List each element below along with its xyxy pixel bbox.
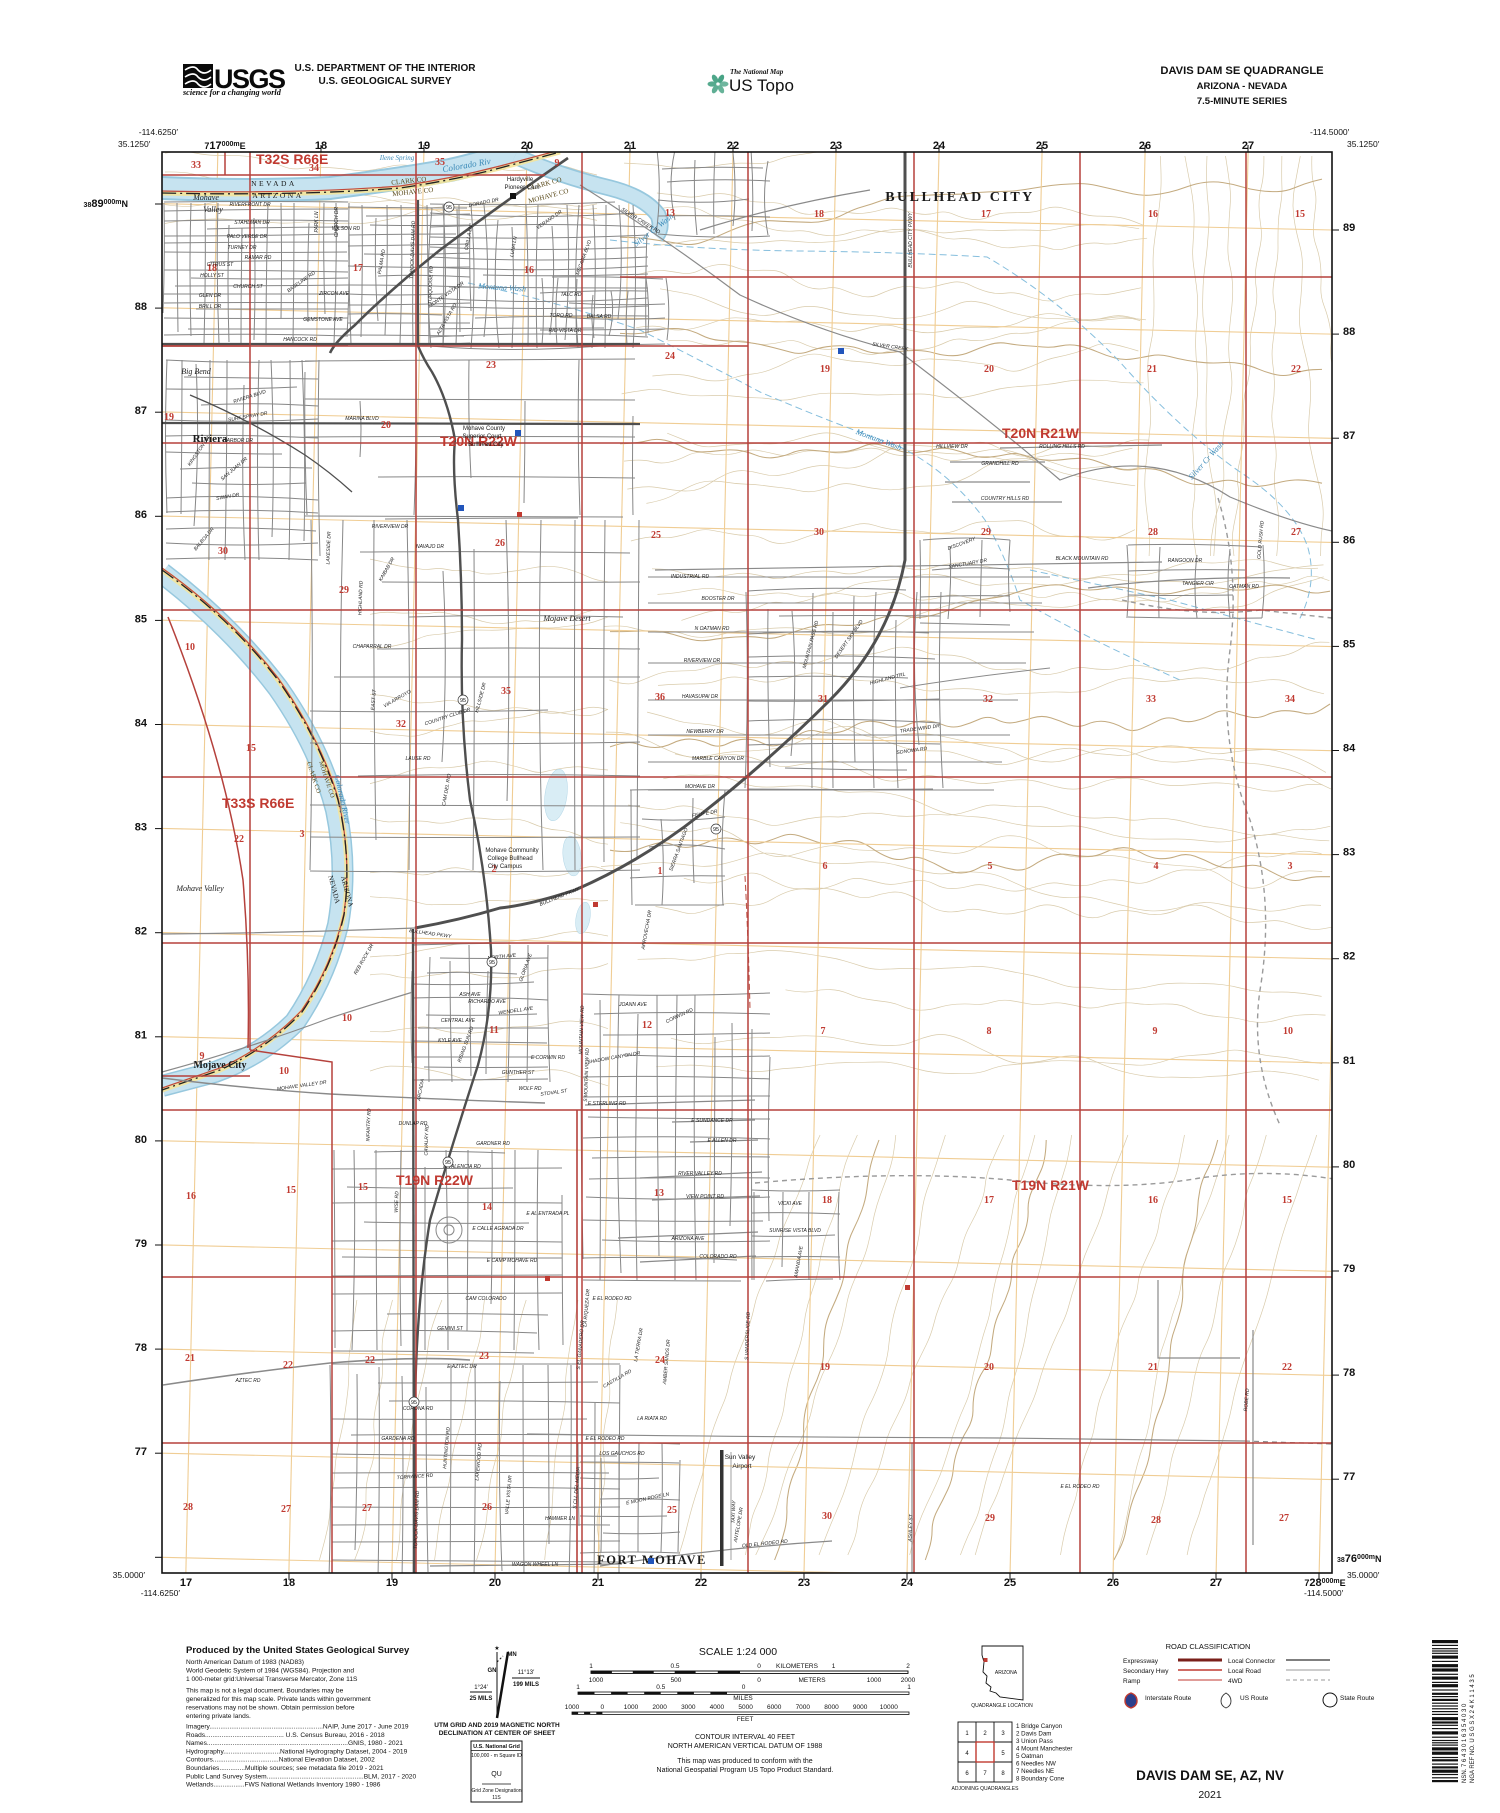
- svg-text:26: 26: [1139, 140, 1151, 152]
- svg-text:81: 81: [1343, 1055, 1355, 1067]
- svg-text:1 Bridge Canyon: 1 Bridge Canyon: [1016, 1723, 1063, 1730]
- svg-text:21: 21: [1147, 364, 1157, 375]
- svg-text:3 Union Pass: 3 Union Pass: [1016, 1738, 1053, 1745]
- svg-text:36: 36: [655, 692, 665, 703]
- svg-text:T19N R21W: T19N R21W: [1012, 1177, 1090, 1193]
- svg-text:GUNTHER ST: GUNTHER ST: [502, 1070, 535, 1076]
- svg-text:11: 11: [489, 1025, 498, 1036]
- svg-text:27: 27: [1291, 527, 1301, 538]
- svg-text:MARBLE CANYON DR: MARBLE CANYON DR: [692, 756, 744, 762]
- svg-text:RIVERVIEW DR: RIVERVIEW DR: [684, 658, 721, 664]
- svg-text:TURNEY DR: TURNEY DR: [227, 245, 256, 251]
- svg-text:QUADRANGLE LOCATION: QUADRANGLE LOCATION: [971, 1703, 1033, 1709]
- svg-text:27: 27: [281, 1504, 291, 1515]
- svg-text:JOANN AVE: JOANN AVE: [618, 1002, 648, 1008]
- svg-text:generalized for this map scale: generalized for this map scale. Private …: [186, 1696, 371, 1703]
- svg-text:RAMAR RD: RAMAR RD: [245, 255, 272, 261]
- svg-text:1°24′: 1°24′: [474, 1685, 488, 1691]
- svg-text:19: 19: [418, 140, 430, 152]
- svg-text:4: 4: [1154, 861, 1159, 872]
- svg-text:Mohave Valley: Mohave Valley: [175, 884, 224, 893]
- svg-text:ASHLEY ST: ASHLEY ST: [907, 1513, 914, 1543]
- svg-text:GLEN DR: GLEN DR: [199, 293, 222, 299]
- svg-text:15: 15: [1282, 1195, 1292, 1206]
- svg-text:Imagery.......................: Imagery.................................…: [186, 1724, 409, 1731]
- svg-text:GARDENA RD: GARDENA RD: [381, 1436, 415, 1442]
- svg-text:State Route: State Route: [1340, 1695, 1375, 1702]
- svg-text:E ALLEN DR: E ALLEN DR: [708, 1138, 737, 1144]
- svg-text:Expressway: Expressway: [1123, 1658, 1159, 1665]
- svg-text:79: 79: [135, 1238, 147, 1250]
- svg-text:Mohave: Mohave: [192, 193, 219, 202]
- svg-text:95: 95: [489, 960, 495, 966]
- svg-text:16: 16: [186, 1191, 196, 1202]
- svg-text:CHAPARRAL DR: CHAPARRAL DR: [353, 644, 392, 650]
- svg-text:23: 23: [486, 360, 496, 371]
- svg-text:84: 84: [1343, 743, 1356, 755]
- svg-text:World Geodetic System of 1984: World Geodetic System of 1984 (WGS84). P…: [186, 1668, 354, 1675]
- svg-text:7: 7: [821, 1026, 826, 1037]
- svg-text:LAKESIDE DR: LAKESIDE DR: [325, 531, 332, 565]
- svg-text:7 Needles NE: 7 Needles NE: [1016, 1768, 1054, 1775]
- svg-text:INFANTRY RD: INFANTRY RD: [365, 1108, 372, 1142]
- svg-text:14: 14: [482, 1202, 492, 1213]
- svg-text:95: 95: [411, 1400, 417, 1406]
- svg-text:28: 28: [183, 1502, 193, 1513]
- svg-text:80: 80: [135, 1134, 147, 1146]
- svg-text:T19N R22W: T19N R22W: [396, 1172, 474, 1188]
- svg-text:DAVIS DAM SE, AZ, NV: DAVIS DAM SE, AZ, NV: [1136, 1768, 1284, 1783]
- svg-text:This map was produced to confo: This map was produced to conform with th…: [677, 1758, 813, 1765]
- svg-text:10: 10: [342, 1013, 352, 1024]
- svg-text:22: 22: [695, 1577, 707, 1589]
- svg-text:Mohave County: Mohave County: [463, 426, 505, 432]
- svg-text:4000: 4000: [710, 1704, 725, 1711]
- svg-text:88: 88: [135, 301, 147, 313]
- svg-text:MN: MN: [507, 1652, 516, 1658]
- svg-text:SCALE 1:24 000: SCALE 1:24 000: [699, 1646, 777, 1658]
- svg-text:11°13′: 11°13′: [518, 1670, 535, 1676]
- svg-text:6000: 6000: [767, 1704, 782, 1711]
- svg-text:24: 24: [901, 1577, 914, 1589]
- svg-text:30: 30: [822, 1511, 832, 1522]
- svg-text:RIO VISTA DR: RIO VISTA DR: [549, 328, 582, 334]
- svg-text:0.5: 0.5: [670, 1663, 679, 1670]
- svg-text:26: 26: [482, 1502, 492, 1513]
- svg-text:17: 17: [984, 1195, 994, 1206]
- svg-text:95: 95: [713, 827, 719, 833]
- svg-text:20: 20: [521, 140, 533, 152]
- svg-text:GARDNER RD: GARDNER RD: [476, 1141, 510, 1147]
- svg-text:Public Land Survey System...: Public Land Survey System...............…: [186, 1773, 416, 1780]
- svg-text:34: 34: [1285, 694, 1295, 705]
- svg-text:Mojave City: Mojave City: [193, 1060, 246, 1071]
- svg-text:Valley: Valley: [203, 205, 223, 214]
- svg-text:E SUNDANCE DR: E SUNDANCE DR: [691, 1118, 733, 1124]
- svg-text:Interstate Route: Interstate Route: [1145, 1695, 1192, 1702]
- svg-text:2000: 2000: [652, 1704, 667, 1711]
- svg-text:NAVAJO DR: NAVAJO DR: [416, 544, 444, 550]
- svg-text:WISE RD: WISE RD: [394, 1191, 401, 1213]
- svg-text:5: 5: [988, 861, 993, 872]
- svg-text:E CAMP MOHAVE RD: E CAMP MOHAVE RD: [487, 1258, 538, 1264]
- svg-text:SUNRISE VISTA BLVD: SUNRISE VISTA BLVD: [769, 1228, 821, 1234]
- svg-text:Hydrography...................: Hydrography.............................…: [186, 1748, 408, 1755]
- svg-text:16: 16: [524, 265, 534, 276]
- svg-text:3: 3: [1288, 861, 1293, 872]
- svg-text:3: 3: [300, 829, 305, 840]
- svg-text:19: 19: [820, 364, 830, 375]
- svg-text:25 MILS: 25 MILS: [470, 1696, 493, 1702]
- svg-text:1000: 1000: [624, 1704, 639, 1711]
- svg-text:NGA REF NO. U S G S X 2 4 K 1: NGA REF NO. U S G S X 2 4 K 1 1 4 3 5: [1470, 1674, 1476, 1783]
- svg-text:18: 18: [283, 1577, 295, 1589]
- svg-text:NEVADA: NEVADA: [251, 179, 297, 188]
- svg-text:CAM COLORADO: CAM COLORADO: [465, 1296, 506, 1302]
- svg-text:ZIRCON AVE: ZIRCON AVE: [318, 291, 350, 297]
- svg-text:ROAD CLASSIFICATION: ROAD CLASSIFICATION: [1166, 1642, 1251, 1651]
- svg-text:86: 86: [135, 509, 147, 521]
- svg-text:ARIZONA: ARIZONA: [995, 1670, 1018, 1676]
- svg-text:95: 95: [445, 1160, 451, 1166]
- svg-text:Contours......................: Contours................................…: [186, 1757, 375, 1764]
- svg-text:7.5-MINUTE SERIES: 7.5-MINUTE SERIES: [1197, 96, 1287, 107]
- svg-text:77: 77: [1343, 1471, 1355, 1483]
- svg-text:TALC RD: TALC RD: [560, 292, 581, 298]
- svg-text:GEMSTONE AVE: GEMSTONE AVE: [303, 317, 343, 323]
- svg-text:TANGIER CIR: TANGIER CIR: [1182, 581, 1214, 587]
- svg-text:This map is not a legal docume: This map is not a legal document. Bounda…: [186, 1688, 344, 1695]
- svg-text:FEET: FEET: [737, 1716, 754, 1723]
- svg-text:GN: GN: [488, 1668, 497, 1674]
- svg-text:81: 81: [135, 1030, 147, 1042]
- svg-text:32: 32: [396, 719, 406, 730]
- svg-text:19: 19: [164, 412, 174, 423]
- svg-text:20: 20: [489, 1577, 501, 1589]
- svg-text:25: 25: [1036, 140, 1048, 152]
- svg-text:2000: 2000: [901, 1677, 916, 1684]
- svg-text:1000: 1000: [565, 1704, 580, 1711]
- svg-text:3000: 3000: [681, 1704, 696, 1711]
- svg-text:24: 24: [933, 140, 946, 152]
- svg-text:The National Map: The National Map: [730, 68, 784, 76]
- svg-text:77: 77: [135, 1446, 147, 1458]
- svg-text:89: 89: [1343, 222, 1355, 234]
- svg-text:GRANDHILL RD: GRANDHILL RD: [981, 461, 1019, 467]
- svg-text:21: 21: [624, 140, 636, 152]
- svg-text:35: 35: [501, 686, 511, 697]
- svg-text:OATMAN RD: OATMAN RD: [1229, 584, 1259, 590]
- svg-text:UTM GRID AND 2019 MAGNETIC NOR: UTM GRID AND 2019 MAGNETIC NORTH: [434, 1722, 560, 1729]
- svg-text:Airport: Airport: [732, 1463, 751, 1470]
- svg-text:5 Oatman: 5 Oatman: [1016, 1753, 1044, 1760]
- svg-text:★: ★: [494, 1645, 499, 1652]
- svg-text:35.1250′: 35.1250′: [118, 139, 151, 149]
- svg-text:22: 22: [1282, 1362, 1292, 1373]
- svg-text:15: 15: [246, 743, 256, 754]
- svg-text:10: 10: [1283, 1026, 1293, 1037]
- svg-text:21: 21: [1148, 1362, 1158, 1373]
- svg-text:23: 23: [830, 140, 842, 152]
- svg-text:10: 10: [185, 642, 195, 653]
- svg-text:E CALLE AGRADA DR: E CALLE AGRADA DR: [472, 1226, 524, 1232]
- svg-text:1: 1: [589, 1663, 593, 1670]
- svg-text:CHURCH ST: CHURCH ST: [233, 284, 263, 290]
- svg-text:RICHARDO AVE: RICHARDO AVE: [468, 999, 506, 1005]
- svg-text:25: 25: [667, 1505, 677, 1516]
- svg-text:18: 18: [822, 1195, 832, 1206]
- svg-text:QU: QU: [491, 1771, 502, 1778]
- svg-text:15: 15: [1295, 209, 1305, 220]
- svg-text:0: 0: [757, 1677, 761, 1684]
- svg-text:17: 17: [353, 263, 363, 274]
- svg-text:Superior Court: Superior Court: [462, 434, 501, 440]
- svg-text:ARIZONA: ARIZONA: [252, 191, 303, 200]
- svg-text:DAVIS DAM SE QUADRANGLE: DAVIS DAM SE QUADRANGLE: [1160, 65, 1324, 77]
- svg-text:29: 29: [339, 585, 349, 596]
- svg-text:22: 22: [727, 140, 739, 152]
- svg-text:2021: 2021: [1198, 1789, 1222, 1801]
- svg-text:20: 20: [984, 1362, 994, 1373]
- svg-text:-114.6250′: -114.6250′: [139, 127, 179, 137]
- svg-text:86: 86: [1343, 534, 1355, 546]
- svg-text:13: 13: [654, 1188, 664, 1199]
- svg-text:8000: 8000: [824, 1704, 839, 1711]
- svg-text:500: 500: [671, 1677, 682, 1684]
- svg-text:23: 23: [479, 1351, 489, 1362]
- svg-text:COLORADO RD: COLORADO RD: [699, 1254, 737, 1260]
- svg-text:GEMINI ST: GEMINI ST: [437, 1326, 464, 1332]
- svg-text:82: 82: [135, 926, 147, 938]
- svg-text:RIVERVIEW DR: RIVERVIEW DR: [372, 524, 409, 530]
- svg-text:1: 1: [907, 1684, 911, 1691]
- svg-text:science for a changing world: science for a changing world: [182, 88, 282, 97]
- svg-text:30: 30: [814, 527, 824, 538]
- svg-text:Pioneer Cem: Pioneer Cem: [504, 185, 539, 191]
- svg-text:23: 23: [798, 1577, 810, 1589]
- svg-text:27: 27: [1210, 1577, 1222, 1589]
- svg-text:27: 27: [362, 1503, 372, 1514]
- svg-text:26: 26: [1107, 1577, 1119, 1589]
- svg-text:16: 16: [1148, 209, 1158, 220]
- svg-text:78: 78: [1343, 1367, 1355, 1379]
- svg-text:19: 19: [386, 1577, 398, 1589]
- svg-text:-114.5000′: -114.5000′: [1304, 1588, 1344, 1598]
- svg-text:HILLVIEW DR: HILLVIEW DR: [936, 444, 968, 450]
- svg-text:NEWBERRY DR: NEWBERRY DR: [686, 729, 724, 735]
- svg-text:22: 22: [234, 834, 244, 845]
- svg-text:BRILL DR: BRILL DR: [199, 304, 222, 310]
- svg-text:20: 20: [984, 364, 994, 375]
- svg-text:21: 21: [592, 1577, 604, 1589]
- svg-text:87: 87: [135, 405, 147, 417]
- svg-text:NSN. 7 6 4 3 0 1 6 3 5 4 0 3: NSN. 7 6 4 3 0 1 6 3 5 4 0 3 0: [1462, 1703, 1468, 1783]
- svg-text:E CORWIN RD: E CORWIN RD: [531, 1055, 565, 1061]
- svg-text:T32S R66E: T32S R66E: [256, 151, 328, 167]
- svg-text:11S: 11S: [492, 1795, 501, 1801]
- svg-text:31: 31: [818, 694, 828, 705]
- svg-text:ASH AVE: ASH AVE: [458, 992, 481, 998]
- svg-text:10: 10: [279, 1066, 289, 1077]
- svg-text:12: 12: [642, 1020, 652, 1031]
- svg-text:HAVASUPAI DR: HAVASUPAI DR: [682, 694, 719, 700]
- svg-text:Grid Zone Designation: Grid Zone Designation: [471, 1788, 521, 1794]
- svg-text:KYLE AVE: KYLE AVE: [438, 1038, 462, 1044]
- svg-text:82: 82: [1343, 951, 1355, 963]
- svg-text:ARIZONA - NEVADA: ARIZONA - NEVADA: [1197, 81, 1288, 92]
- svg-text:Ramp: Ramp: [1123, 1678, 1141, 1685]
- svg-text:HAMMER LN: HAMMER LN: [545, 1516, 575, 1522]
- svg-text:BULLHEAD CITY PKWY: BULLHEAD CITY PKWY: [908, 212, 914, 268]
- svg-text:U.S. DEPARTMENT OF THE INTERIO: U.S. DEPARTMENT OF THE INTERIOR: [295, 63, 477, 74]
- svg-text:Produced by the United States: Produced by the United States Geological…: [186, 1645, 410, 1656]
- svg-text:35.1250′: 35.1250′: [1347, 139, 1380, 149]
- svg-text:22: 22: [283, 1360, 293, 1371]
- svg-text:STAHLMAN DR: STAHLMAN DR: [234, 220, 270, 226]
- svg-text:199 MILS: 199 MILS: [513, 1682, 539, 1688]
- svg-text:Wetlands.................FWS: Wetlands.................FWS National We…: [186, 1782, 381, 1789]
- svg-text:6: 6: [823, 861, 828, 872]
- svg-text:U.S. GEOLOGICAL SURVEY: U.S. GEOLOGICAL SURVEY: [319, 76, 452, 87]
- svg-text:25: 25: [1004, 1577, 1016, 1589]
- svg-text:Secondary Hwy: Secondary Hwy: [1123, 1668, 1169, 1675]
- svg-text:35.0000′: 35.0000′: [113, 1570, 146, 1580]
- svg-text:Mojave Desert: Mojave Desert: [542, 614, 591, 623]
- svg-text:6 Needles NW: 6 Needles NW: [1016, 1761, 1056, 1768]
- svg-text:83: 83: [135, 822, 147, 834]
- svg-text:18: 18: [315, 140, 327, 152]
- svg-text:BLACK MOUNTAIN RD: BLACK MOUNTAIN RD: [1056, 556, 1109, 562]
- svg-text:MARINA BLVD: MARINA BLVD: [345, 416, 379, 422]
- svg-text:CONTOUR INTERVAL 40 FEET: CONTOUR INTERVAL 40 FEET: [695, 1734, 796, 1741]
- svg-text:25: 25: [651, 530, 661, 541]
- svg-text:entering private lands.: entering private lands.: [186, 1713, 251, 1720]
- svg-text:26: 26: [495, 538, 505, 549]
- svg-text:T33S R66E: T33S R66E: [222, 795, 294, 811]
- svg-text:DUNLAP RD: DUNLAP RD: [399, 1121, 428, 1127]
- svg-text:NORTH AMERICAN VERTICAL DATUM: NORTH AMERICAN VERTICAL DATUM OF 1988: [668, 1743, 823, 1750]
- svg-text:E STERLING RD: E STERLING RD: [588, 1101, 627, 1107]
- svg-text:35.0000′: 35.0000′: [1347, 1570, 1380, 1580]
- svg-text:RIVER VALLEY RD: RIVER VALLEY RD: [678, 1171, 722, 1177]
- svg-text:27: 27: [1279, 1513, 1289, 1524]
- svg-text:16: 16: [1148, 1195, 1158, 1206]
- svg-text:1: 1: [658, 866, 663, 877]
- svg-text:0: 0: [742, 1684, 746, 1691]
- svg-text:80: 80: [1343, 1159, 1355, 1171]
- svg-text:Local Connector: Local Connector: [1228, 1658, 1276, 1665]
- svg-text:28: 28: [1148, 527, 1158, 538]
- svg-text:CITRUS ST: CITRUS ST: [207, 262, 234, 268]
- svg-text:95: 95: [460, 698, 466, 704]
- svg-text:1: 1: [832, 1663, 836, 1670]
- svg-text:8 Boundary Cone: 8 Boundary Cone: [1016, 1776, 1065, 1783]
- svg-text:22: 22: [1291, 364, 1301, 375]
- svg-text:reservations may not be shown.: reservations may not be shown. Obtain pe…: [186, 1705, 355, 1712]
- svg-text:Mohave Community: Mohave Community: [485, 848, 538, 854]
- svg-text:95: 95: [446, 205, 452, 211]
- svg-text:CENTRAL AVE: CENTRAL AVE: [441, 1018, 476, 1024]
- svg-text:79: 79: [1343, 1263, 1355, 1275]
- svg-text:CHURCH DR: CHURCH DR: [334, 206, 340, 237]
- svg-text:ROLLING HILLS RD: ROLLING HILLS RD: [1039, 444, 1085, 450]
- svg-text:7000: 7000: [796, 1704, 811, 1711]
- svg-text:N OATMAN RD: N OATMAN RD: [695, 626, 730, 632]
- svg-text:Roads.........................: Roads...................................…: [186, 1732, 385, 1739]
- svg-text:PARK LN: PARK LN: [314, 211, 320, 232]
- svg-text:Local Road: Local Road: [1228, 1668, 1261, 1675]
- svg-text:US Route: US Route: [1240, 1695, 1269, 1702]
- svg-text:1 000-meter grid:Universal Tra: 1 000-meter grid:Universal Transverse Me…: [186, 1676, 358, 1683]
- svg-text:MILES: MILES: [733, 1695, 753, 1702]
- svg-text:9: 9: [555, 158, 560, 169]
- svg-text:RANGOON DR: RANGOON DR: [1168, 558, 1203, 564]
- svg-text:32: 32: [983, 694, 993, 705]
- svg-text:4 Mount Manchester: 4 Mount Manchester: [1016, 1746, 1072, 1753]
- svg-text:87: 87: [1343, 430, 1355, 442]
- svg-text:RIVERFRONT DR: RIVERFRONT DR: [229, 202, 271, 208]
- svg-text:Boundaries..............Multip: Boundaries..............Multiple sources…: [186, 1765, 384, 1772]
- svg-text:INDUSTRIAL RD: INDUSTRIAL RD: [671, 574, 710, 580]
- svg-text:BALSA RD: BALSA RD: [587, 314, 612, 320]
- svg-text:E AL ENTRADA PL: E AL ENTRADA PL: [526, 1211, 569, 1217]
- svg-text:COUNTRY HILLS RD: COUNTRY HILLS RD: [981, 496, 1030, 502]
- svg-text:College Bullhead: College Bullhead: [487, 856, 532, 862]
- svg-text:100,000 - m Square ID: 100,000 - m Square ID: [471, 1753, 522, 1759]
- svg-text:ADJOINING QUADRANGLES: ADJOINING QUADRANGLES: [952, 1786, 1020, 1792]
- svg-text:E EL RODEO RD: E EL RODEO RD: [1060, 1484, 1099, 1490]
- svg-text:Big Bend: Big Bend: [181, 367, 212, 376]
- svg-text:1000: 1000: [589, 1677, 604, 1684]
- svg-text:ARIZONA AVE: ARIZONA AVE: [671, 1236, 706, 1242]
- svg-text:83: 83: [1343, 847, 1355, 859]
- svg-text:BULLHEAD CITY: BULLHEAD CITY: [885, 190, 1035, 205]
- svg-text:20: 20: [381, 420, 391, 431]
- svg-text:METERS: METERS: [798, 1677, 826, 1684]
- svg-text:-114.6250′: -114.6250′: [141, 1588, 181, 1598]
- svg-text:CORONA RD: CORONA RD: [403, 1406, 434, 1412]
- svg-text:Hardyville: Hardyville: [507, 177, 534, 183]
- svg-text:78: 78: [135, 1342, 147, 1354]
- svg-text:2: 2: [906, 1663, 910, 1670]
- svg-text:28: 28: [1151, 1515, 1161, 1526]
- svg-text:15: 15: [358, 1182, 368, 1193]
- svg-text:84: 84: [135, 717, 148, 729]
- svg-text:33: 33: [1146, 694, 1156, 705]
- svg-text:19: 19: [820, 1362, 830, 1373]
- svg-text:0: 0: [757, 1663, 761, 1670]
- svg-text:HOLLY ST: HOLLY ST: [200, 273, 225, 279]
- svg-text:8: 8: [987, 1026, 992, 1037]
- svg-text:9: 9: [1153, 1026, 1158, 1037]
- svg-text:10000: 10000: [880, 1704, 898, 1711]
- svg-text:LA RIATA RD: LA RIATA RD: [637, 1416, 667, 1422]
- svg-text:5000: 5000: [738, 1704, 753, 1711]
- svg-text:22: 22: [365, 1355, 375, 1366]
- svg-text:18: 18: [814, 209, 824, 220]
- svg-text:30: 30: [218, 546, 228, 557]
- svg-text:29: 29: [985, 1513, 995, 1524]
- svg-text:Ilene Spring: Ilene Spring: [379, 154, 415, 162]
- svg-text:-114.5000′: -114.5000′: [1310, 127, 1350, 137]
- svg-text:VIEW POINT RD: VIEW POINT RD: [686, 1194, 724, 1200]
- svg-text:21: 21: [185, 1353, 195, 1364]
- svg-text:29: 29: [981, 527, 991, 538]
- svg-text:National Geospatial Program US: National Geospatial Program US Topo Prod…: [657, 1767, 834, 1774]
- svg-text:HARBOR DR: HARBOR DR: [223, 438, 253, 444]
- svg-text:LOS GAUCHOS RD: LOS GAUCHOS RD: [599, 1451, 645, 1457]
- svg-text:4WD: 4WD: [1228, 1678, 1243, 1685]
